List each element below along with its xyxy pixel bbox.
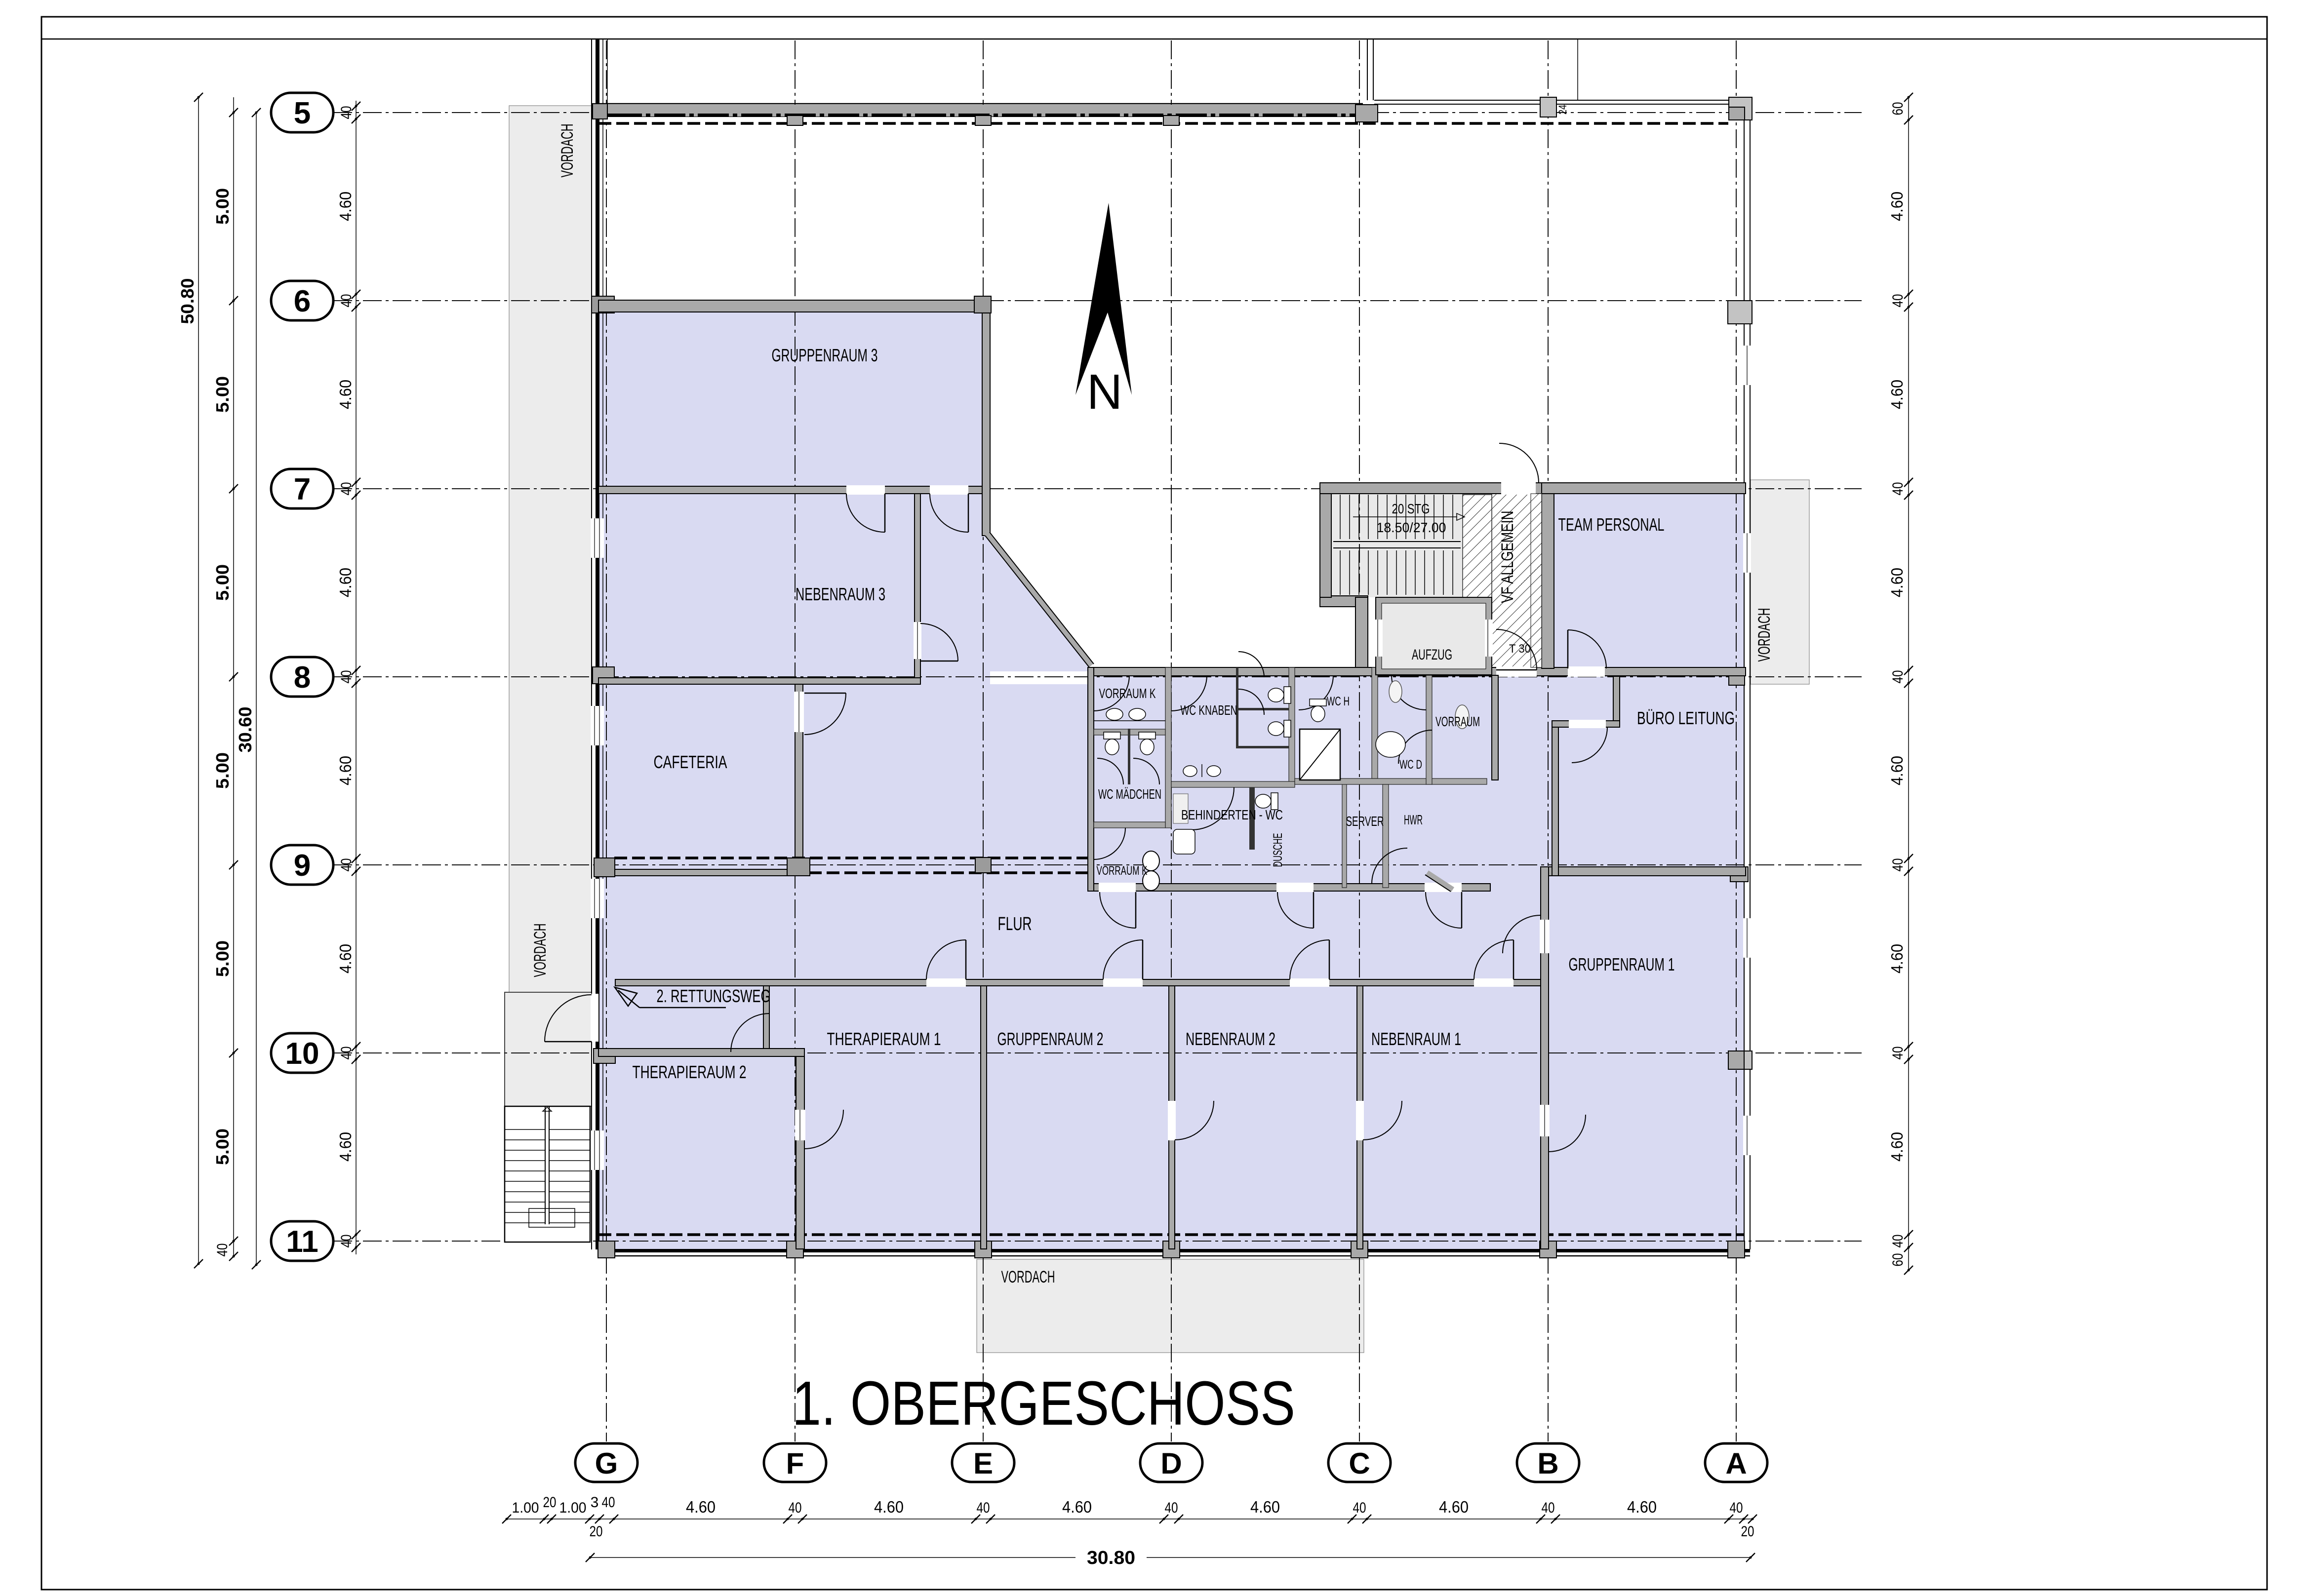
svg-text:5.00: 5.00 <box>212 940 233 977</box>
svg-text:1. OBERGESCHOSS: 1. OBERGESCHOSS <box>792 1368 1295 1438</box>
svg-text:40: 40 <box>1730 1500 1743 1516</box>
svg-text:4.60: 4.60 <box>336 380 355 409</box>
svg-text:40: 40 <box>1890 858 1906 872</box>
svg-text:7: 7 <box>294 472 311 506</box>
svg-text:GRUPPENRAUM 1: GRUPPENRAUM 1 <box>1569 954 1675 974</box>
svg-text:B: B <box>1537 1447 1558 1480</box>
svg-text:40: 40 <box>1890 670 1906 684</box>
svg-text:C: C <box>1349 1447 1370 1480</box>
svg-text:11: 11 <box>286 1225 319 1259</box>
svg-text:VORRAUM K: VORRAUM K <box>1099 686 1156 701</box>
svg-text:30.60: 30.60 <box>235 707 255 753</box>
svg-text:10: 10 <box>285 1037 319 1071</box>
svg-text:1.00: 1.00 <box>512 1500 539 1516</box>
svg-text:GRUPPENRAUM 2: GRUPPENRAUM 2 <box>997 1029 1104 1049</box>
svg-text:4.60: 4.60 <box>336 1132 355 1162</box>
svg-text:WC MÄDCHEN: WC MÄDCHEN <box>1098 786 1161 802</box>
svg-text:40: 40 <box>1890 1047 1906 1060</box>
svg-text:5.00: 5.00 <box>212 1129 233 1165</box>
svg-text:2. RETTUNGSWEG: 2. RETTUNGSWEG <box>657 986 771 1006</box>
svg-text:4.60: 4.60 <box>1062 1498 1092 1516</box>
svg-text:4.60: 4.60 <box>336 568 355 597</box>
svg-text:T 30: T 30 <box>1509 642 1531 656</box>
svg-text:VORRAUM: VORRAUM <box>1435 714 1480 729</box>
svg-text:WC KNABEN: WC KNABEN <box>1181 702 1237 718</box>
svg-text:4.60: 4.60 <box>1888 1132 1906 1162</box>
svg-text:40: 40 <box>1542 1500 1555 1516</box>
svg-text:18.50/27.00: 18.50/27.00 <box>1377 520 1446 535</box>
svg-text:VORDACH: VORDACH <box>558 124 577 178</box>
svg-text:40: 40 <box>602 1494 615 1511</box>
svg-text:D: D <box>1160 1447 1182 1480</box>
svg-text:WC D: WC D <box>1399 758 1422 772</box>
svg-text:4.60: 4.60 <box>874 1498 904 1516</box>
svg-text:40: 40 <box>338 106 355 119</box>
svg-text:5.00: 5.00 <box>212 752 233 789</box>
svg-text:VORDACH: VORDACH <box>1001 1268 1055 1286</box>
svg-text:40: 40 <box>338 670 355 684</box>
svg-text:4.60: 4.60 <box>1627 1498 1657 1516</box>
svg-text:20: 20 <box>590 1523 603 1540</box>
svg-text:NEBENRAUM 3: NEBENRAUM 3 <box>796 584 885 604</box>
svg-text:40: 40 <box>338 1235 355 1248</box>
svg-text:4.60: 4.60 <box>686 1498 716 1516</box>
svg-text:20 STG: 20 STG <box>1392 501 1430 516</box>
svg-text:40: 40 <box>338 858 355 872</box>
svg-text:5.00: 5.00 <box>212 564 233 601</box>
svg-text:VORDACH: VORDACH <box>531 924 550 977</box>
svg-text:BÜRO LEITUNG: BÜRO LEITUNG <box>1637 708 1735 728</box>
svg-text:40: 40 <box>1890 482 1906 496</box>
svg-text:20: 20 <box>543 1494 557 1511</box>
svg-text:4.60: 4.60 <box>336 192 355 221</box>
svg-text:60: 60 <box>1890 1253 1906 1267</box>
svg-text:20: 20 <box>1741 1523 1754 1540</box>
svg-text:AUFZUG: AUFZUG <box>1412 647 1452 663</box>
svg-text:40: 40 <box>338 482 355 496</box>
svg-text:4.60: 4.60 <box>1439 1498 1469 1516</box>
svg-text:4.60: 4.60 <box>336 756 355 785</box>
svg-text:VF ALLGEMEIN: VF ALLGEMEIN <box>1498 511 1517 603</box>
svg-text:FLUR: FLUR <box>998 914 1032 934</box>
svg-text:BEHINDERTEN - WC: BEHINDERTEN - WC <box>1181 807 1283 822</box>
svg-text:A: A <box>1725 1447 1747 1480</box>
svg-text:30.80: 30.80 <box>1087 1548 1135 1568</box>
svg-text:40: 40 <box>214 1244 231 1257</box>
svg-text:NEBENRAUM 1: NEBENRAUM 1 <box>1371 1029 1461 1049</box>
svg-text:4.60: 4.60 <box>1888 192 1906 221</box>
svg-text:4.60: 4.60 <box>1888 380 1906 409</box>
svg-text:F: F <box>786 1447 804 1480</box>
svg-text:40: 40 <box>1890 294 1906 308</box>
svg-text:GRUPPENRAUM 3: GRUPPENRAUM 3 <box>772 345 878 365</box>
svg-text:50.80: 50.80 <box>177 278 198 324</box>
svg-text:DUSCHE: DUSCHE <box>1271 833 1285 867</box>
svg-text:40: 40 <box>1165 1500 1178 1516</box>
svg-text:40: 40 <box>789 1500 802 1516</box>
svg-text:N: N <box>1087 364 1122 420</box>
svg-text:8: 8 <box>294 661 311 695</box>
svg-text:40: 40 <box>338 294 355 308</box>
svg-text:E: E <box>973 1447 993 1480</box>
svg-text:6: 6 <box>294 284 311 318</box>
svg-text:3: 3 <box>591 1494 599 1511</box>
svg-text:40: 40 <box>1890 1235 1906 1248</box>
svg-text:4.60: 4.60 <box>336 944 355 973</box>
svg-text:NEBENRAUM 2: NEBENRAUM 2 <box>1186 1029 1275 1049</box>
svg-text:4.60: 4.60 <box>1888 944 1906 973</box>
svg-text:5.00: 5.00 <box>212 188 233 225</box>
svg-text:40: 40 <box>1353 1500 1366 1516</box>
svg-text:TEAM PERSONAL: TEAM PERSONAL <box>1558 514 1665 535</box>
svg-text:4.60: 4.60 <box>1250 1498 1280 1516</box>
svg-text:VORRAUM K: VORRAUM K <box>1097 864 1148 878</box>
svg-text:VORDACH: VORDACH <box>1755 608 1774 662</box>
svg-text:THERAPIERAUM 1: THERAPIERAUM 1 <box>827 1029 941 1049</box>
svg-text:4.60: 4.60 <box>1888 568 1906 597</box>
svg-text:60: 60 <box>1890 102 1906 116</box>
svg-text:1.00: 1.00 <box>559 1500 587 1516</box>
svg-text:CAFETERIA: CAFETERIA <box>654 752 727 772</box>
svg-text:40: 40 <box>338 1047 355 1060</box>
svg-text:WC H: WC H <box>1327 695 1350 708</box>
svg-text:24: 24 <box>1556 105 1569 115</box>
svg-text:HWR: HWR <box>1404 812 1423 827</box>
svg-text:G: G <box>595 1447 618 1480</box>
svg-text:THERAPIERAUM 2: THERAPIERAUM 2 <box>633 1062 747 1082</box>
svg-text:5: 5 <box>294 96 311 130</box>
svg-text:4.60: 4.60 <box>1888 756 1906 785</box>
svg-text:5.00: 5.00 <box>212 376 233 413</box>
svg-text:9: 9 <box>294 849 311 883</box>
svg-text:40: 40 <box>977 1500 990 1516</box>
svg-text:SERVER: SERVER <box>1346 814 1384 829</box>
